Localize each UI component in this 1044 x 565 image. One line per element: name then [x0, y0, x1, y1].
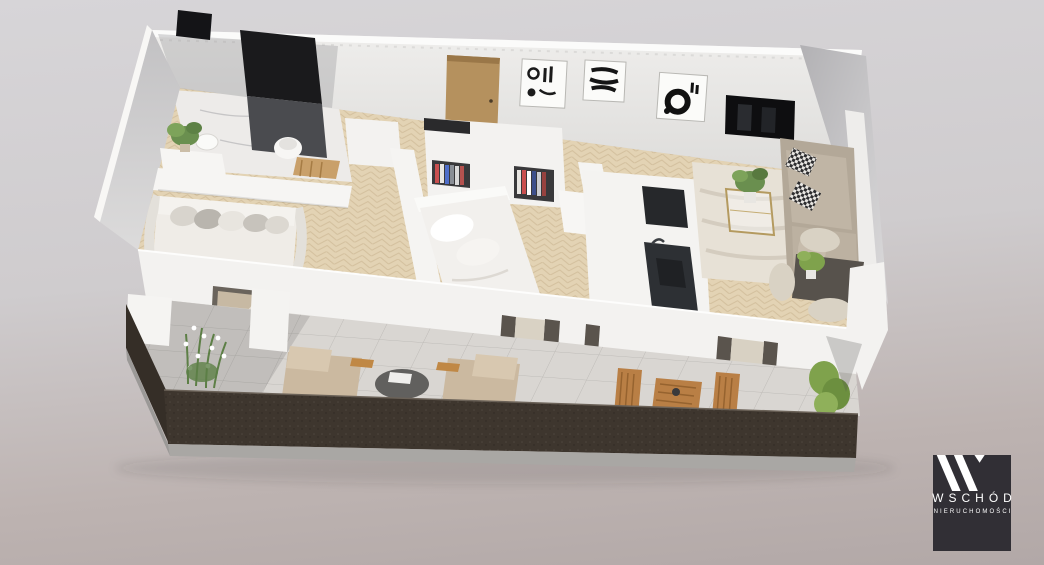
toilet-seat: [279, 138, 297, 150]
balcony-pier-2: [249, 288, 290, 352]
wall-tv: [725, 95, 795, 140]
logo-brand-text: WSCHÓD: [927, 492, 1017, 504]
closet-rack-1: [432, 160, 470, 188]
screenshot-stage: WSCHÓD NIERUCHOMOŚCI: [0, 0, 1044, 565]
wschod-logo: WSCHÓD NIERUCHOMOŚCI: [933, 455, 1011, 551]
logo-tagline-text: NIERUCHOMOŚCI: [931, 509, 1012, 515]
kitchen-sink: [656, 258, 686, 288]
book-on-table: [388, 372, 412, 384]
door-handle: [489, 99, 493, 103]
w-monogram-icon: [933, 455, 985, 491]
artwork-abstract-2: [583, 60, 626, 102]
artwork-abstract-1: [520, 59, 567, 108]
dining-chair-left: [769, 263, 795, 301]
kitchen: [582, 170, 710, 318]
floorplan-render: [0, 0, 1044, 565]
round-side-table: [375, 369, 429, 399]
sink: [196, 134, 218, 150]
table-decor: [672, 388, 680, 396]
mirror-cabinet: [176, 10, 212, 40]
shower-black-panel: [240, 30, 322, 104]
kitchen-tall-unit: [642, 186, 688, 228]
closet-rack-2: [514, 166, 554, 202]
circle-artwork: [656, 72, 707, 121]
dining-chair-bottom: [808, 298, 852, 322]
